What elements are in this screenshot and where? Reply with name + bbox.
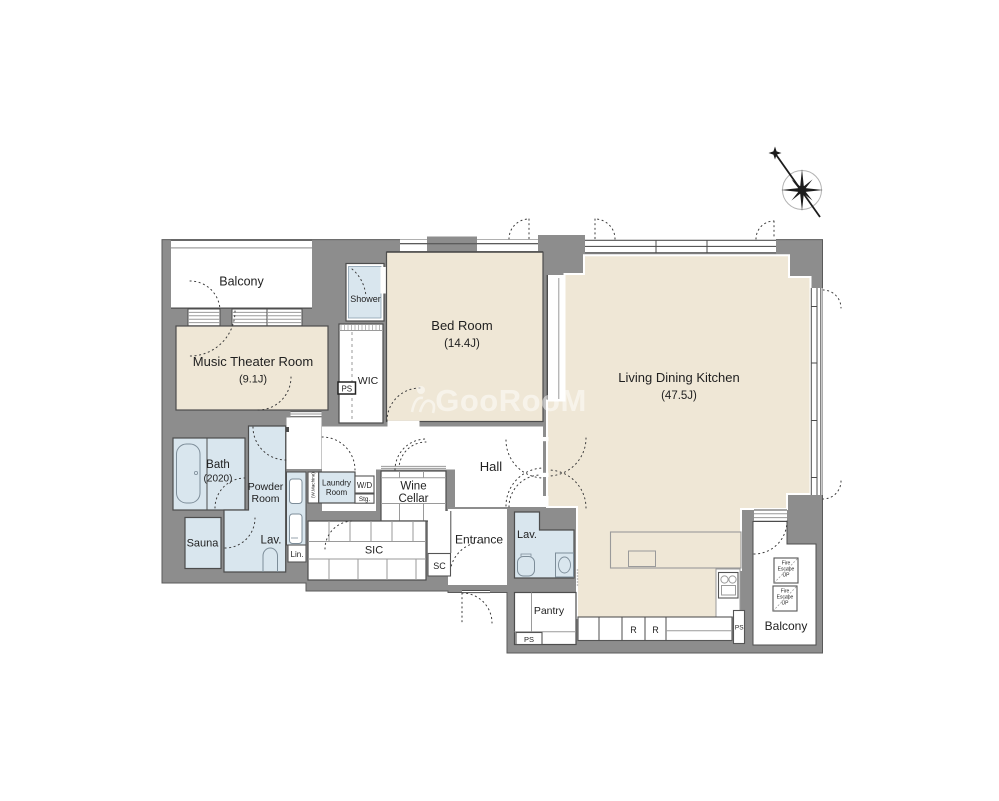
svg-text:Bed Room: Bed Room	[431, 318, 492, 333]
svg-text:Powder: Powder	[248, 481, 284, 493]
svg-text:UP: UP	[782, 601, 790, 607]
svg-text:WIC: WIC	[358, 375, 379, 387]
svg-text:SIC: SIC	[365, 545, 383, 557]
svg-text:Cellar: Cellar	[398, 493, 428, 505]
svg-text:Bath: Bath	[206, 459, 230, 471]
svg-text:GooRooM: GooRooM	[435, 383, 587, 418]
svg-text:Lin.: Lin.	[291, 550, 304, 559]
svg-text:Stg.: Stg.	[359, 496, 371, 503]
svg-text:Balcony: Balcony	[765, 619, 808, 633]
svg-text:PS: PS	[341, 385, 352, 394]
svg-text:Room: Room	[251, 493, 279, 505]
svg-text:Lav.: Lav.	[517, 529, 537, 541]
svg-text:Pantry: Pantry	[534, 605, 565, 617]
svg-text:(W.Machine): (W.Machine)	[311, 472, 316, 498]
svg-text:Shower: Shower	[350, 294, 381, 304]
svg-text:Room: Room	[326, 488, 348, 497]
svg-text:Hall: Hall	[480, 459, 503, 474]
svg-text:R: R	[652, 625, 659, 635]
svg-text:Living Dining Kitchen: Living Dining Kitchen	[618, 370, 739, 385]
svg-text:W/D: W/D	[357, 481, 373, 490]
svg-text:Music Theater Room: Music Theater Room	[193, 354, 313, 369]
svg-text:Wine: Wine	[400, 481, 426, 493]
svg-text:Lav.: Lav.	[261, 535, 282, 547]
svg-text:(9.1J): (9.1J)	[239, 374, 267, 386]
svg-text:PS: PS	[735, 625, 744, 632]
svg-text:SC: SC	[433, 561, 446, 571]
svg-text:UP: UP	[783, 573, 791, 579]
svg-text:(47.5J): (47.5J)	[661, 390, 697, 402]
svg-text:Entrance: Entrance	[455, 533, 503, 547]
svg-text:R: R	[630, 625, 637, 635]
svg-text:Laundry: Laundry	[322, 479, 351, 488]
svg-text:PS: PS	[524, 635, 534, 644]
svg-text:Balcony: Balcony	[219, 275, 264, 289]
svg-text:Sauna: Sauna	[187, 538, 220, 550]
svg-text:(14.4J): (14.4J)	[444, 338, 480, 350]
svg-text:(2020): (2020)	[204, 474, 233, 485]
